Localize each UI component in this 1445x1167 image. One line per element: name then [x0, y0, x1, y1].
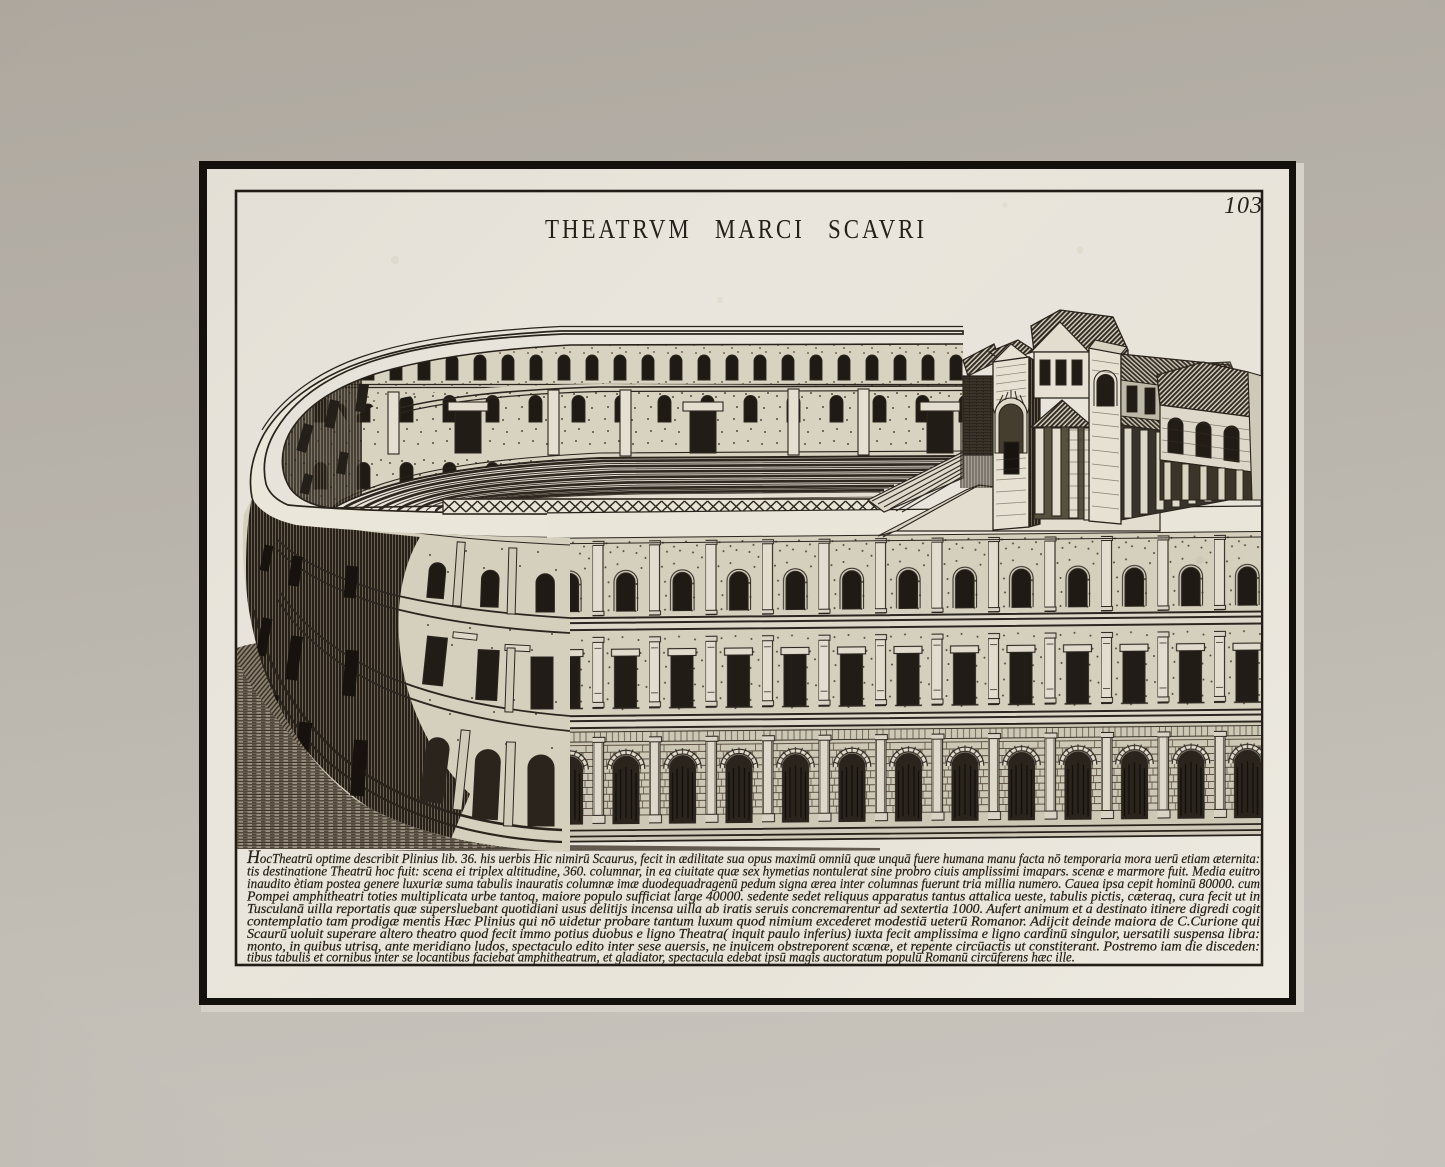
svg-text:THEATRVM MARCI SCAVRI: THEATRVM MARCI SCAVRI	[545, 214, 927, 244]
svg-text:103: 103	[1224, 193, 1263, 219]
svg-text:tibus tabulis et cornibus inte: tibus tabulis et cornibus inter se locan…	[247, 950, 1075, 965]
